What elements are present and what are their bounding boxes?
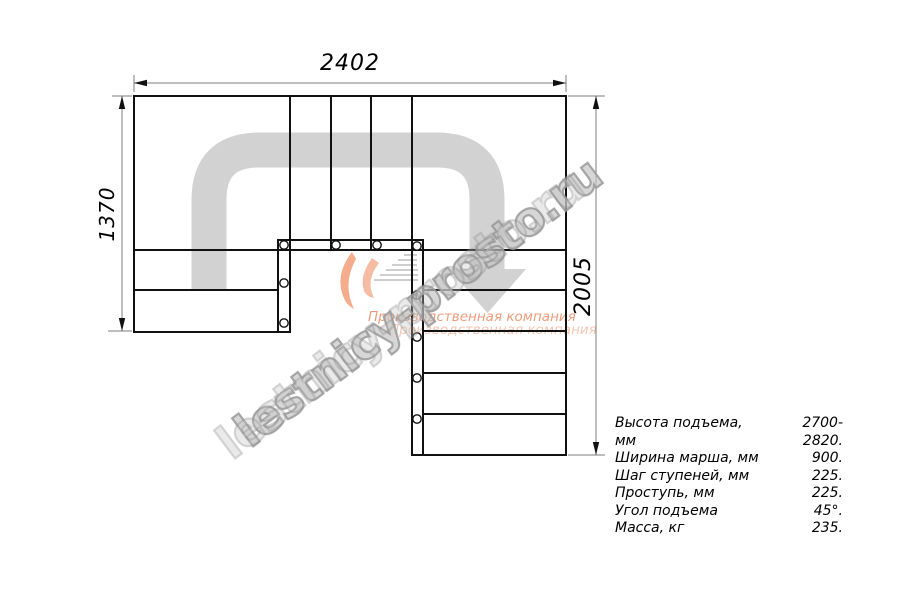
spec-value: 225. [812,485,843,503]
flame-icon [340,252,356,309]
spec-label: Проступь, мм [615,485,715,503]
spec-row: Ширина марша, мм 900. [615,450,843,468]
dimension-label-left-height: 1370 [95,184,119,244]
dimension-label-width: 2402 [300,51,400,76]
spec-value: 2700-2820. [764,415,843,450]
dimension-label-right-height: 2005 [571,254,597,318]
spec-value: 225. [812,468,843,486]
spec-row: Шаг ступеней, мм 225. [615,468,843,486]
spec-value: 900. [812,450,843,468]
spec-value: 235. [812,520,843,538]
dimension-lines [108,75,605,455]
spec-label: Угол подъема [615,503,718,521]
spec-row: Угол подъема 45°. [615,503,843,521]
spec-row: Проступь, мм 225. [615,485,843,503]
spec-label: Масса, кг [615,520,684,538]
spec-row: Высота подъема, мм 2700-2820. [615,415,843,450]
flame-icon [363,258,379,298]
staircase-drawing-page: Производственная компания Производственн… [0,0,900,600]
spec-label: Высота подъема, мм [615,415,764,450]
spec-value: 45°. [814,503,843,521]
spec-row: Масса, кг 235. [615,520,843,538]
spec-label: Шаг ступеней, мм [615,468,749,486]
spec-list: Высота подъема, мм 2700-2820. Ширина мар… [615,415,843,538]
spec-label: Ширина марша, мм [615,450,759,468]
company-logo-watermark: Производственная компания Производственн… [340,252,596,338]
